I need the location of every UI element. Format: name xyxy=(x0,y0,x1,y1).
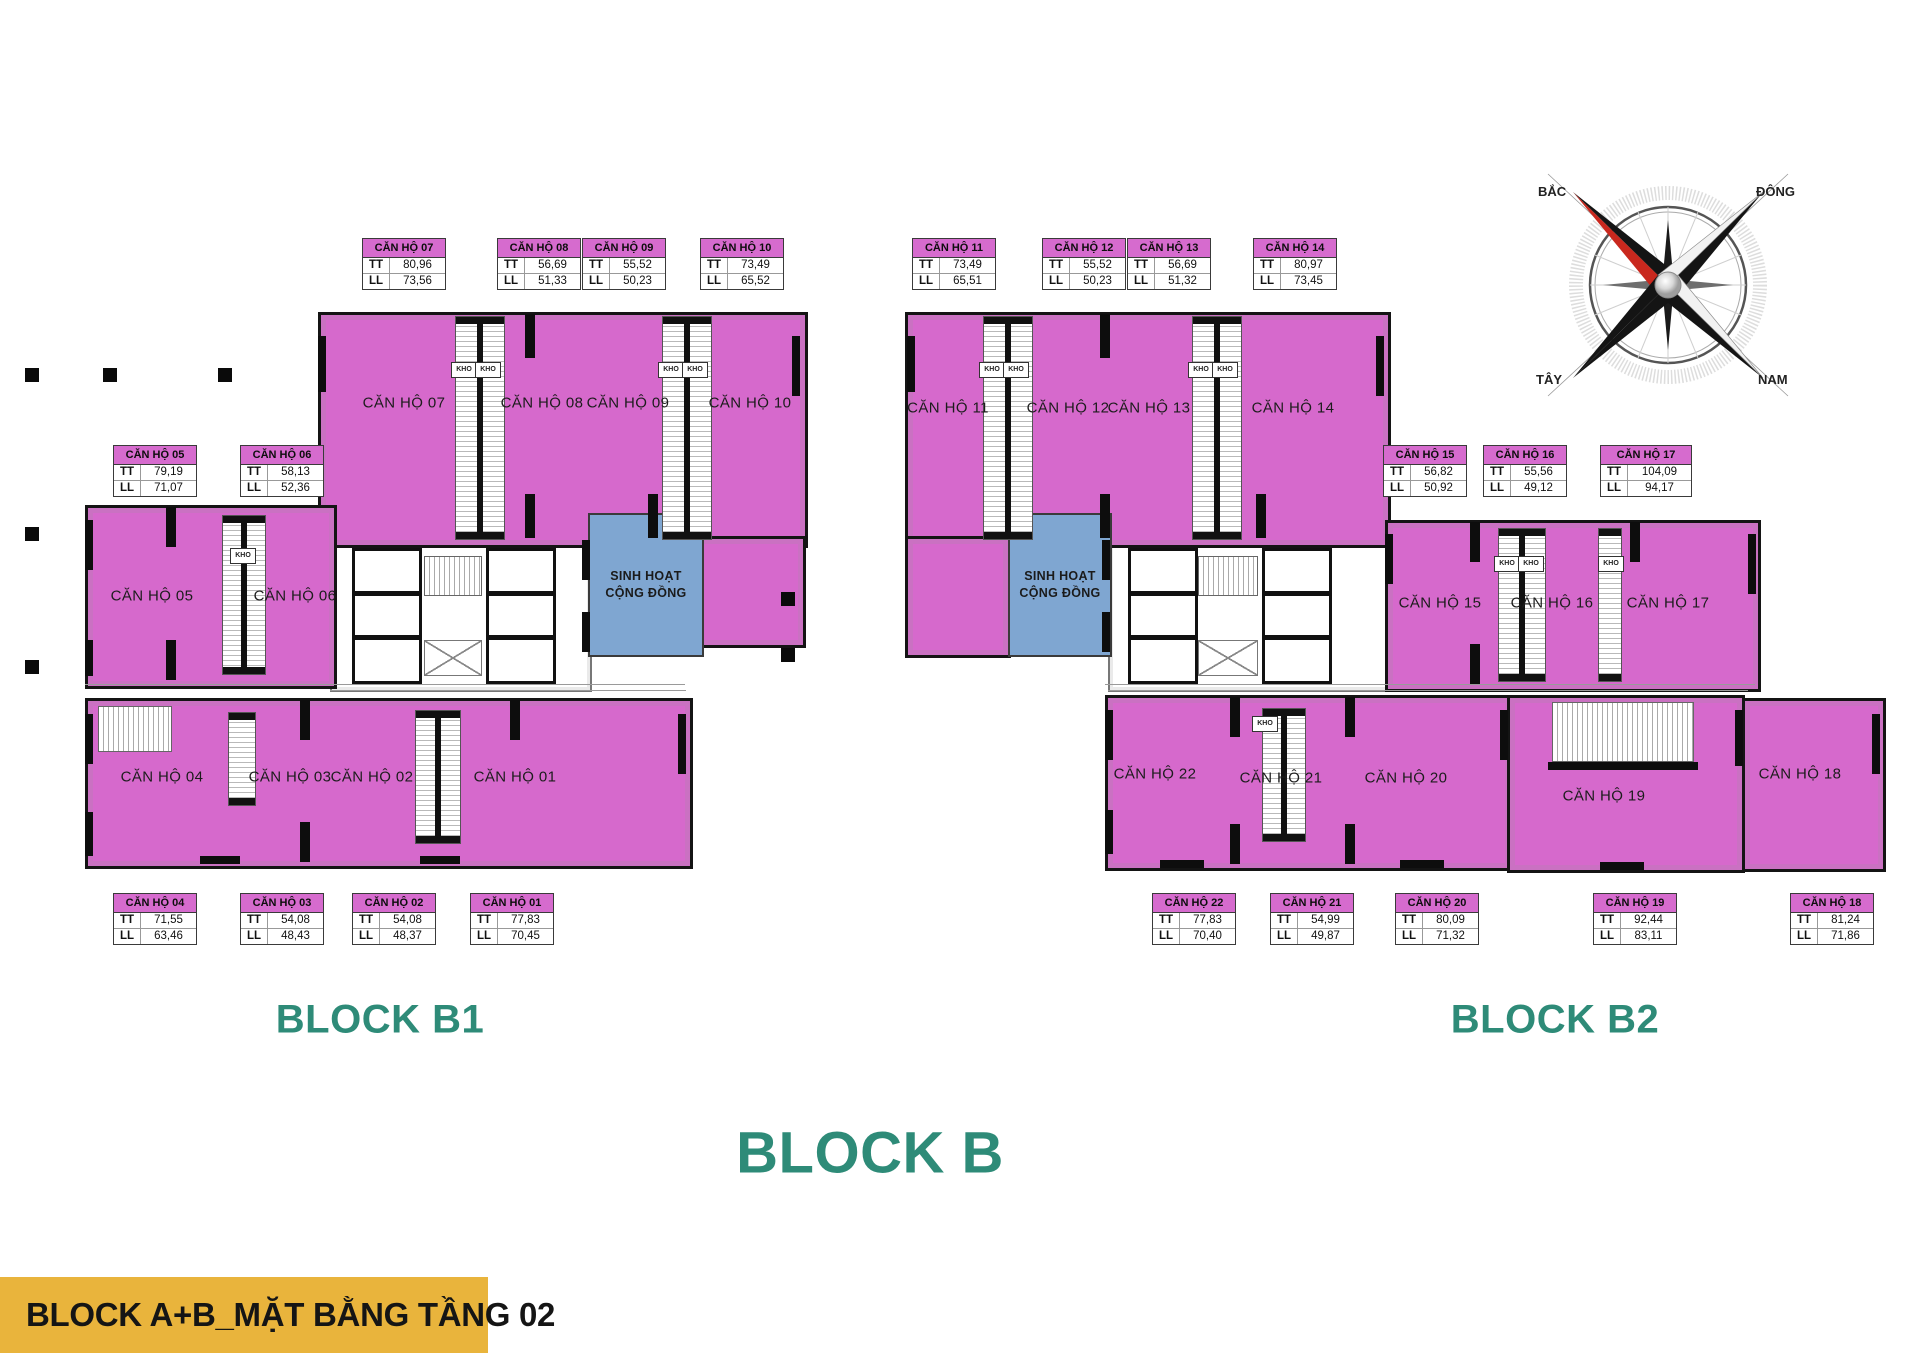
area-table-row: LL48,43 xyxy=(241,928,323,944)
b2-stair-shaft xyxy=(983,316,1033,540)
kho-storage-label: KHO xyxy=(682,362,708,378)
area-table-row: TT56,82 xyxy=(1384,465,1466,480)
b1-stair-shaft xyxy=(662,316,712,540)
area-key: LL xyxy=(363,274,390,289)
area-table-03: CĂN HỘ 03TT54,08LL48,43 xyxy=(240,893,324,945)
wall-segment xyxy=(1630,522,1640,562)
b2-unit11-extension xyxy=(905,536,1011,658)
area-value: 50,92 xyxy=(1411,481,1466,496)
wall-segment xyxy=(1160,860,1204,868)
area-table-row: LL73,56 xyxy=(363,273,445,289)
area-value: 71,86 xyxy=(1818,929,1873,944)
area-table-07: CĂN HỘ 07TT80,96LL73,56 xyxy=(362,238,446,290)
wall-segment xyxy=(300,700,310,740)
area-value: 49,87 xyxy=(1298,929,1353,944)
area-value: 77,83 xyxy=(1180,913,1235,928)
area-table-row: TT55,56 xyxy=(1484,465,1566,480)
b2-unit19-stairs xyxy=(1552,702,1694,762)
area-table-row: TT80,97 xyxy=(1254,258,1336,273)
elevator-wall xyxy=(355,635,419,640)
wall-segment xyxy=(166,507,176,547)
compass-label-east: ĐÔNG xyxy=(1756,184,1795,199)
area-value: 56,82 xyxy=(1411,465,1466,480)
area-table-row: TT55,52 xyxy=(583,258,665,273)
area-table-21: CĂN HỘ 21TT54,99LL49,87 xyxy=(1270,893,1354,945)
area-value: 83,11 xyxy=(1621,929,1676,944)
corridor-line xyxy=(1105,684,1755,685)
wall-segment xyxy=(1872,714,1880,774)
kho-storage-label: KHO xyxy=(1598,556,1624,572)
area-table-row: LL70,40 xyxy=(1153,928,1235,944)
b2-core-stairs xyxy=(1198,556,1258,596)
area-value: 65,52 xyxy=(728,274,783,289)
area-key: LL xyxy=(1601,481,1628,496)
area-table-header: CĂN HỘ 22 xyxy=(1153,894,1235,913)
area-table-row: LL71,32 xyxy=(1396,928,1478,944)
area-key: TT xyxy=(498,258,525,273)
area-value: 104,09 xyxy=(1628,465,1691,480)
area-key: LL xyxy=(498,274,525,289)
community-room-line1: SINH HOẠT xyxy=(1024,568,1095,586)
area-key: TT xyxy=(241,465,268,480)
wall-segment xyxy=(1345,697,1355,737)
area-table-row: LL49,12 xyxy=(1484,480,1566,496)
area-table-19: CĂN HỘ 19TT92,44LL83,11 xyxy=(1593,893,1677,945)
community-room-line1: SINH HOẠT xyxy=(610,568,681,586)
area-value: 81,24 xyxy=(1818,913,1873,928)
area-table-header: CĂN HỘ 05 xyxy=(114,446,196,465)
column-marker xyxy=(25,660,39,674)
unit-room-label-17: CĂN HỘ 17 xyxy=(1627,595,1710,612)
area-key: LL xyxy=(1128,274,1155,289)
area-table-row: LL65,52 xyxy=(701,273,783,289)
area-key: TT xyxy=(913,258,940,273)
wall-segment xyxy=(907,336,915,392)
area-value: 73,49 xyxy=(728,258,783,273)
area-table-15: CĂN HỘ 15TT56,82LL50,92 xyxy=(1383,445,1467,497)
area-value: 80,96 xyxy=(390,258,445,273)
area-table-row: TT56,69 xyxy=(1128,258,1210,273)
area-table-header: CĂN HỘ 12 xyxy=(1043,239,1125,258)
area-value: 54,08 xyxy=(268,913,323,928)
b1-stair-shaft xyxy=(455,316,505,540)
area-table-row: TT58,13 xyxy=(241,465,323,480)
area-value: 71,32 xyxy=(1423,929,1478,944)
b2-top-row xyxy=(905,312,1391,548)
area-key: LL xyxy=(1271,929,1298,944)
area-table-22: CĂN HỘ 22TT77,83LL70,40 xyxy=(1152,893,1236,945)
area-key: LL xyxy=(1791,929,1818,944)
wall-segment xyxy=(85,812,93,856)
kho-storage-label: KHO xyxy=(475,362,501,378)
area-table-row: TT80,96 xyxy=(363,258,445,273)
corridor-line xyxy=(85,684,685,685)
area-key: TT xyxy=(241,913,268,928)
kho-storage-label: KHO xyxy=(1188,362,1214,378)
wall-segment xyxy=(1548,762,1698,770)
area-key: TT xyxy=(1601,465,1628,480)
area-table-row: TT77,83 xyxy=(471,913,553,928)
unit-room-label-13: CĂN HỘ 13 xyxy=(1108,400,1191,417)
wall-segment xyxy=(1600,862,1644,870)
area-table-header: CĂN HỘ 13 xyxy=(1128,239,1210,258)
wall-segment xyxy=(1385,534,1393,584)
column-marker xyxy=(781,592,795,606)
wall-segment xyxy=(1470,522,1480,562)
unit-room-label-14: CĂN HỘ 14 xyxy=(1252,400,1335,417)
area-table-header: CĂN HỘ 14 xyxy=(1254,239,1336,258)
block-b1-title: BLOCK B1 xyxy=(276,998,484,1043)
area-key: LL xyxy=(701,274,728,289)
area-key: TT xyxy=(1271,913,1298,928)
wall-segment xyxy=(166,640,176,680)
unit-room-label-02: CĂN HỘ 02 xyxy=(331,769,414,786)
area-value: 52,36 xyxy=(268,481,323,496)
unit-room-label-19: CĂN HỘ 19 xyxy=(1563,788,1646,805)
area-key: LL xyxy=(1153,929,1180,944)
area-table-header: CĂN HỘ 01 xyxy=(471,894,553,913)
area-table-row: LL50,23 xyxy=(583,273,665,289)
unit-room-label-20: CĂN HỘ 20 xyxy=(1365,770,1448,787)
area-value: 73,49 xyxy=(940,258,995,273)
area-value: 77,83 xyxy=(498,913,553,928)
area-table-row: LL94,17 xyxy=(1601,480,1691,496)
b2-stair-shaft xyxy=(1598,528,1622,682)
area-value: 49,12 xyxy=(1511,481,1566,496)
wall-segment xyxy=(1230,697,1240,737)
area-table-row: LL63,46 xyxy=(114,928,196,944)
area-table-row: LL70,45 xyxy=(471,928,553,944)
unit-room-label-12: CĂN HỘ 12 xyxy=(1027,400,1110,417)
unit-room-label-07: CĂN HỘ 07 xyxy=(363,395,446,412)
area-table-row: LL52,36 xyxy=(241,480,323,496)
area-key: TT xyxy=(1396,913,1423,928)
area-table-row: TT56,69 xyxy=(498,258,580,273)
column-marker xyxy=(781,648,795,662)
area-table-header: CĂN HỘ 11 xyxy=(913,239,995,258)
area-table-11: CĂN HỘ 11TT73,49LL65,51 xyxy=(912,238,996,290)
unit-room-label-18: CĂN HỘ 18 xyxy=(1759,766,1842,783)
compass-label-south: NAM xyxy=(1758,372,1788,387)
area-table-row: LL48,37 xyxy=(353,928,435,944)
wall-segment xyxy=(1100,494,1110,538)
area-table-header: CĂN HỘ 09 xyxy=(583,239,665,258)
unit-room-label-01: CĂN HỘ 01 xyxy=(474,769,557,786)
area-value: 58,13 xyxy=(268,465,323,480)
area-table-13: CĂN HỘ 13TT56,69LL51,32 xyxy=(1127,238,1211,290)
area-table-16: CĂN HỘ 16TT55,56LL49,12 xyxy=(1483,445,1567,497)
area-key: LL xyxy=(353,929,380,944)
b1-service-shaft xyxy=(424,640,482,676)
b1-unit04-stairs xyxy=(98,706,172,752)
unit-room-label-09: CĂN HỘ 09 xyxy=(587,395,670,412)
area-table-header: CĂN HỘ 19 xyxy=(1594,894,1676,913)
column-marker xyxy=(218,368,232,382)
area-key: TT xyxy=(353,913,380,928)
area-table-header: CĂN HỘ 02 xyxy=(353,894,435,913)
b1-elevator-bank xyxy=(486,548,556,684)
elevator-wall xyxy=(355,591,419,596)
area-value: 55,52 xyxy=(1070,258,1125,273)
wall-segment xyxy=(1345,824,1355,864)
b1-elevator-bank xyxy=(352,548,422,684)
area-key: TT xyxy=(1791,913,1818,928)
community-room-line2: CỘNG ĐỒNG xyxy=(605,585,686,603)
area-value: 92,44 xyxy=(1621,913,1676,928)
area-table-04: CĂN HỘ 04TT71,55LL63,46 xyxy=(113,893,197,945)
unit-room-label-10: CĂN HỘ 10 xyxy=(709,395,792,412)
area-table-12: CĂN HỘ 12TT55,52LL50,23 xyxy=(1042,238,1126,290)
area-table-row: TT54,99 xyxy=(1271,913,1353,928)
wall-segment xyxy=(1256,494,1266,538)
area-table-header: CĂN HỘ 04 xyxy=(114,894,196,913)
wall-segment xyxy=(510,700,520,740)
area-key: TT xyxy=(701,258,728,273)
area-value: 54,08 xyxy=(380,913,435,928)
kho-storage-label: KHO xyxy=(230,548,256,564)
area-table-header: CĂN HỘ 03 xyxy=(241,894,323,913)
kho-storage-label: KHO xyxy=(1518,556,1544,572)
area-table-row: LL51,32 xyxy=(1128,273,1210,289)
area-key: LL xyxy=(1384,481,1411,496)
unit-room-label-06: CĂN HỘ 06 xyxy=(254,588,337,605)
column-marker xyxy=(103,368,117,382)
community-room-line2: CỘNG ĐỒNG xyxy=(1019,585,1100,603)
wall-segment xyxy=(1748,534,1756,594)
wall-segment xyxy=(1400,860,1444,868)
wall-segment xyxy=(300,822,310,862)
compass-label-west: TÂY xyxy=(1536,372,1562,387)
unit-room-label-11: CĂN HỘ 11 xyxy=(907,400,989,417)
area-key: TT xyxy=(1128,258,1155,273)
area-value: 80,09 xyxy=(1423,913,1478,928)
sheet-title-banner: BLOCK A+B_MẶT BẰNG TẦNG 02 xyxy=(0,1277,488,1353)
area-table-row: TT54,08 xyxy=(241,913,323,928)
unit-room-label-08: CĂN HỘ 08 xyxy=(501,395,584,412)
wall-segment xyxy=(1735,710,1743,766)
area-value: 50,23 xyxy=(1070,274,1125,289)
area-value: 48,43 xyxy=(268,929,323,944)
area-table-14: CĂN HỘ 14TT80,97LL73,45 xyxy=(1253,238,1337,290)
elevator-wall xyxy=(1265,591,1329,596)
wall-segment xyxy=(1230,824,1240,864)
unit-room-label-16: CĂN HỘ 16 xyxy=(1511,595,1594,612)
area-value: 63,46 xyxy=(141,929,196,944)
wall-segment xyxy=(525,494,535,538)
b1-stair-shaft xyxy=(415,710,461,844)
area-key: LL xyxy=(1484,481,1511,496)
wall-segment xyxy=(1105,710,1113,760)
area-table-06: CĂN HỘ 06TT58,13LL52,36 xyxy=(240,445,324,497)
area-value: 48,37 xyxy=(380,929,435,944)
elevator-wall xyxy=(1131,635,1195,640)
wall-segment xyxy=(85,520,93,570)
sheet-title-text: BLOCK A+B_MẶT BẰNG TẦNG 02 xyxy=(26,1296,555,1334)
area-key: TT xyxy=(471,913,498,928)
wall-segment xyxy=(1102,540,1110,580)
area-value: 56,69 xyxy=(525,258,580,273)
area-table-row: TT55,52 xyxy=(1043,258,1125,273)
area-value: 54,99 xyxy=(1298,913,1353,928)
unit-room-label-21: CĂN HỘ 21 xyxy=(1240,770,1323,787)
area-table-header: CĂN HỘ 17 xyxy=(1601,446,1691,465)
area-table-header: CĂN HỘ 06 xyxy=(241,446,323,465)
area-table-row: TT77,83 xyxy=(1153,913,1235,928)
block-b2-title: BLOCK B2 xyxy=(1451,998,1659,1043)
b1-core-stairs xyxy=(424,556,482,596)
wall-segment xyxy=(582,540,590,580)
wall-segment xyxy=(200,856,240,864)
wall-segment xyxy=(1376,336,1384,396)
area-key: LL xyxy=(241,929,268,944)
area-key: LL xyxy=(913,274,940,289)
area-key: TT xyxy=(1043,258,1070,273)
area-value: 51,32 xyxy=(1155,274,1210,289)
area-value: 50,23 xyxy=(610,274,665,289)
kho-storage-label: KHO xyxy=(1252,716,1278,732)
area-table-05: CĂN HỘ 05TT79,19LL71,07 xyxy=(113,445,197,497)
elevator-wall xyxy=(489,635,553,640)
wall-segment xyxy=(1500,710,1508,760)
wall-segment xyxy=(1102,612,1110,652)
unit-room-label-03: CĂN HỘ 03 xyxy=(249,769,332,786)
area-table-row: LL65,51 xyxy=(913,273,995,289)
area-value: 51,33 xyxy=(525,274,580,289)
wall-segment xyxy=(1470,644,1480,684)
area-value: 70,40 xyxy=(1180,929,1235,944)
wall-segment xyxy=(85,714,93,764)
area-table-row: TT73,49 xyxy=(913,258,995,273)
area-table-row: LL49,87 xyxy=(1271,928,1353,944)
area-table-20: CĂN HỘ 20TT80,09LL71,32 xyxy=(1395,893,1479,945)
area-key: TT xyxy=(1254,258,1281,273)
area-key: LL xyxy=(471,929,498,944)
b1-stair-shaft xyxy=(228,712,256,806)
area-value: 73,56 xyxy=(390,274,445,289)
floor-plan-page: SINH HOẠT CỘNG ĐỒNG SINH HOẠT CỘNG ĐỒNG xyxy=(0,0,1920,1357)
area-table-09: CĂN HỘ 09TT55,52LL50,23 xyxy=(582,238,666,290)
area-key: LL xyxy=(1594,929,1621,944)
area-key: TT xyxy=(1484,465,1511,480)
area-value: 65,51 xyxy=(940,274,995,289)
area-table-header: CĂN HỘ 21 xyxy=(1271,894,1353,913)
b2-service-shaft xyxy=(1198,640,1258,676)
area-table-row: TT54,08 xyxy=(353,913,435,928)
wall-segment xyxy=(85,640,93,676)
wall-segment xyxy=(792,336,800,396)
wall-segment xyxy=(1100,314,1110,358)
kho-storage-label: KHO xyxy=(979,362,1005,378)
b2-stair-shaft xyxy=(1192,316,1242,540)
elevator-wall xyxy=(1265,635,1329,640)
area-table-08: CĂN HỘ 08TT56,69LL51,33 xyxy=(497,238,581,290)
block-b-title: BLOCK B xyxy=(736,1120,1004,1187)
area-table-row: LL71,07 xyxy=(114,480,196,496)
area-key: TT xyxy=(1594,913,1621,928)
kho-storage-label: KHO xyxy=(451,362,477,378)
area-table-10: CĂN HỘ 10TT73,49LL65,52 xyxy=(700,238,784,290)
area-table-row: TT81,24 xyxy=(1791,913,1873,928)
area-value: 71,55 xyxy=(141,913,196,928)
area-key: TT xyxy=(114,913,141,928)
wall-segment xyxy=(1105,810,1113,854)
wall-segment xyxy=(648,494,658,538)
area-table-row: TT73,49 xyxy=(701,258,783,273)
area-value: 56,69 xyxy=(1155,258,1210,273)
area-key: LL xyxy=(241,481,268,496)
area-table-17: CĂN HỘ 17TT104,09LL94,17 xyxy=(1600,445,1692,497)
area-table-02: CĂN HỘ 02TT54,08LL48,37 xyxy=(352,893,436,945)
wall-segment xyxy=(582,612,590,652)
area-value: 79,19 xyxy=(141,465,196,480)
area-key: LL xyxy=(583,274,610,289)
area-table-header: CĂN HỘ 07 xyxy=(363,239,445,258)
area-table-header: CĂN HỘ 10 xyxy=(701,239,783,258)
area-table-row: LL73,45 xyxy=(1254,273,1336,289)
area-key: LL xyxy=(1043,274,1070,289)
area-value: 55,52 xyxy=(610,258,665,273)
area-value: 80,97 xyxy=(1281,258,1336,273)
area-key: TT xyxy=(363,258,390,273)
kho-storage-label: KHO xyxy=(1212,362,1238,378)
column-marker xyxy=(25,527,39,541)
wall-segment xyxy=(678,714,686,774)
column-marker xyxy=(25,368,39,382)
compass-label-north: BẮC xyxy=(1538,184,1567,199)
area-table-row: TT80,09 xyxy=(1396,913,1478,928)
elevator-wall xyxy=(1131,591,1195,596)
area-value: 94,17 xyxy=(1628,481,1691,496)
area-table-01: CĂN HỘ 01TT77,83LL70,45 xyxy=(470,893,554,945)
b2-elevator-bank xyxy=(1128,548,1198,684)
area-key: LL xyxy=(1396,929,1423,944)
area-table-header: CĂN HỘ 20 xyxy=(1396,894,1478,913)
wall-segment xyxy=(525,314,535,358)
area-key: TT xyxy=(1153,913,1180,928)
wall-segment xyxy=(318,336,326,392)
area-table-row: TT79,19 xyxy=(114,465,196,480)
area-value: 70,45 xyxy=(498,929,553,944)
compass-rose: BẮC ĐÔNG TÂY NAM xyxy=(1518,160,1818,410)
compass-center-ball xyxy=(1655,272,1681,298)
unit-room-label-04: CĂN HỘ 04 xyxy=(121,769,204,786)
area-table-header: CĂN HỘ 08 xyxy=(498,239,580,258)
kho-storage-label: KHO xyxy=(1494,556,1520,572)
unit-room-label-15: CĂN HỘ 15 xyxy=(1399,595,1482,612)
area-table-row: LL50,92 xyxy=(1384,480,1466,496)
area-table-row: LL83,11 xyxy=(1594,928,1676,944)
corridor-line xyxy=(330,690,686,691)
b2-unit18-block xyxy=(1742,698,1886,872)
unit-room-label-05: CĂN HỘ 05 xyxy=(111,588,194,605)
area-value: 73,45 xyxy=(1281,274,1336,289)
area-value: 71,07 xyxy=(141,481,196,496)
area-table-row: TT71,55 xyxy=(114,913,196,928)
area-key: LL xyxy=(114,481,141,496)
kho-storage-label: KHO xyxy=(658,362,684,378)
area-table-header: CĂN HỘ 18 xyxy=(1791,894,1873,913)
area-table-row: TT92,44 xyxy=(1594,913,1676,928)
b1-top-row xyxy=(318,312,808,548)
area-table-header: CĂN HỘ 15 xyxy=(1384,446,1466,465)
area-value: 55,56 xyxy=(1511,465,1566,480)
area-key: TT xyxy=(583,258,610,273)
area-table-row: LL51,33 xyxy=(498,273,580,289)
area-key: TT xyxy=(1384,465,1411,480)
area-table-18: CĂN HỘ 18TT81,24LL71,86 xyxy=(1790,893,1874,945)
area-table-row: LL71,86 xyxy=(1791,928,1873,944)
area-key: TT xyxy=(114,465,141,480)
